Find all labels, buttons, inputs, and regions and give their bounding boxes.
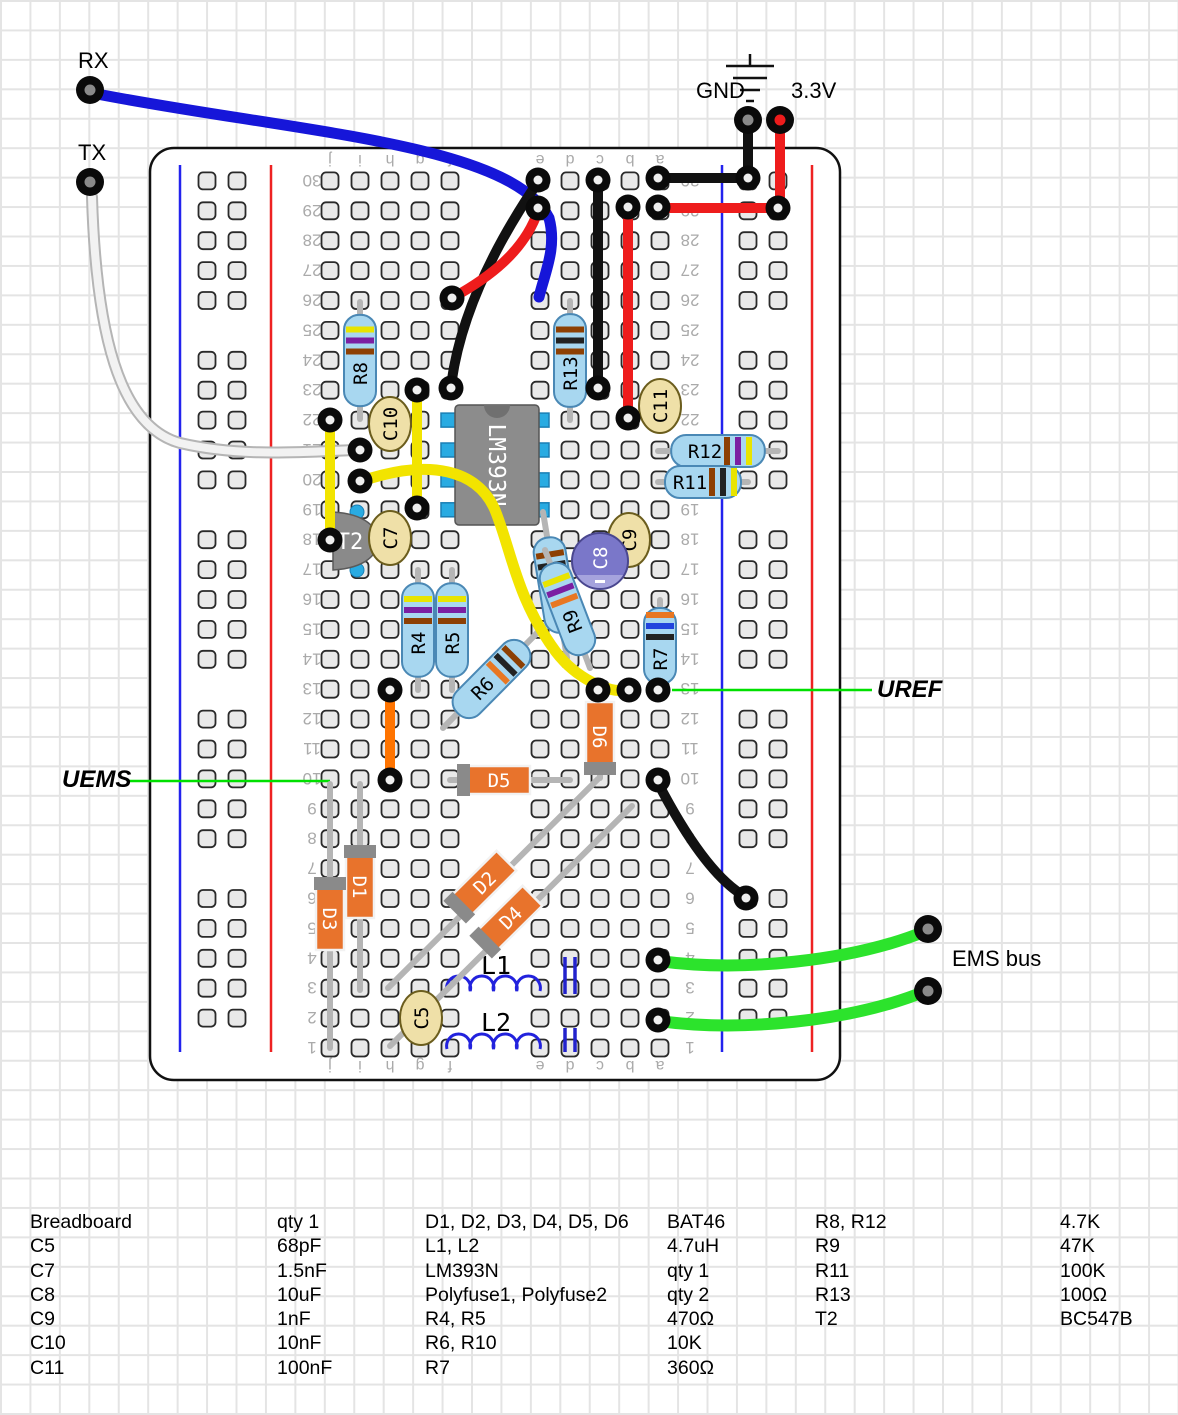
breadboard-hole[interactable] bbox=[740, 741, 757, 758]
wire-pin[interactable] bbox=[646, 768, 671, 793]
breadboard-hole[interactable] bbox=[229, 711, 246, 728]
breadboard-hole[interactable] bbox=[229, 561, 246, 578]
breadboard-hole[interactable] bbox=[532, 681, 549, 698]
breadboard-hole[interactable] bbox=[412, 711, 429, 728]
breadboard-hole[interactable] bbox=[229, 1010, 246, 1027]
breadboard-hole[interactable] bbox=[412, 800, 429, 817]
breadboard-hole[interactable] bbox=[622, 442, 639, 459]
breadboard-hole[interactable] bbox=[562, 890, 579, 907]
breadboard-hole[interactable] bbox=[199, 741, 216, 758]
breadboard-hole[interactable] bbox=[532, 950, 549, 967]
resistor-band bbox=[646, 623, 674, 629]
breadboard-hole[interactable] bbox=[382, 890, 399, 907]
breadboard-hole[interactable] bbox=[562, 471, 579, 488]
breadboard-hole[interactable] bbox=[352, 591, 369, 608]
wire-pin[interactable] bbox=[646, 166, 671, 191]
row-number: 28 bbox=[303, 231, 322, 250]
wire-pin[interactable] bbox=[440, 286, 465, 311]
wire-pin[interactable] bbox=[646, 195, 671, 220]
breadboard-hole[interactable] bbox=[770, 830, 787, 847]
breadboard-hole[interactable] bbox=[199, 950, 216, 967]
breadboard-hole[interactable] bbox=[229, 770, 246, 787]
breadboard-hole[interactable] bbox=[199, 202, 216, 219]
breadboard-hole[interactable] bbox=[622, 651, 639, 668]
breadboard-hole[interactable] bbox=[740, 920, 757, 937]
breadboard-hole[interactable] bbox=[532, 860, 549, 877]
breadboard-hole[interactable] bbox=[229, 651, 246, 668]
breadboard-hole[interactable] bbox=[592, 651, 609, 668]
breadboard-hole[interactable] bbox=[412, 770, 429, 787]
breadboard-hole[interactable] bbox=[352, 741, 369, 758]
breadboard-hole[interactable] bbox=[532, 1010, 549, 1027]
breadboard-hole[interactable] bbox=[442, 800, 459, 817]
resistor-band bbox=[346, 338, 374, 344]
breadboard-hole[interactable] bbox=[412, 860, 429, 877]
breadboard-hole[interactable] bbox=[322, 651, 339, 668]
breadboard-hole[interactable] bbox=[740, 711, 757, 728]
breadboard-hole[interactable] bbox=[229, 232, 246, 249]
part-designator: LM393N bbox=[425, 1259, 629, 1283]
breadboard-hole[interactable] bbox=[199, 920, 216, 937]
breadboard-hole[interactable] bbox=[532, 352, 549, 369]
breadboard-hole[interactable] bbox=[199, 531, 216, 548]
breadboard-hole[interactable] bbox=[229, 531, 246, 548]
breadboard-hole[interactable] bbox=[770, 561, 787, 578]
breadboard-hole[interactable] bbox=[652, 352, 669, 369]
breadboard-hole[interactable] bbox=[770, 262, 787, 279]
breadboard-hole[interactable] bbox=[622, 770, 639, 787]
breadboard-hole[interactable] bbox=[442, 262, 459, 279]
breadboard-hole[interactable] bbox=[229, 890, 246, 907]
breadboard-hole[interactable] bbox=[229, 412, 246, 429]
breadboard-hole[interactable] bbox=[592, 412, 609, 429]
breadboard-hole[interactable] bbox=[229, 920, 246, 937]
breadboard-hole[interactable] bbox=[532, 711, 549, 728]
breadboard-hole[interactable] bbox=[562, 442, 579, 459]
wire-pin[interactable] bbox=[646, 948, 671, 973]
wire-pin[interactable] bbox=[378, 678, 403, 703]
breadboard-hole[interactable] bbox=[740, 800, 757, 817]
breadboard-hole[interactable] bbox=[199, 830, 216, 847]
component-d6[interactable]: D6 bbox=[584, 692, 616, 778]
breadboard-hole[interactable] bbox=[652, 262, 669, 279]
part-value: 360Ω bbox=[667, 1356, 725, 1380]
breadboard-hole[interactable] bbox=[352, 681, 369, 698]
breadboard-hole[interactable] bbox=[652, 711, 669, 728]
wire-pin[interactable] bbox=[526, 168, 551, 193]
part-value: 470Ω bbox=[667, 1307, 725, 1331]
breadboard-hole[interactable] bbox=[382, 202, 399, 219]
breadboard-hole[interactable] bbox=[382, 292, 399, 309]
wire-pin[interactable] bbox=[646, 1008, 671, 1033]
breadboard-hole[interactable] bbox=[322, 621, 339, 638]
breadboard-hole[interactable] bbox=[592, 860, 609, 877]
breadboard-hole[interactable] bbox=[352, 232, 369, 249]
breadboard-hole[interactable] bbox=[412, 531, 429, 548]
breadboard-hole[interactable] bbox=[322, 202, 339, 219]
breadboard-hole[interactable] bbox=[229, 800, 246, 817]
breadboard-hole[interactable] bbox=[770, 890, 787, 907]
breadboard-hole[interactable] bbox=[382, 232, 399, 249]
breadboard-hole[interactable] bbox=[199, 711, 216, 728]
breadboard-hole[interactable] bbox=[562, 172, 579, 189]
breadboard-hole[interactable] bbox=[622, 591, 639, 608]
breadboard-hole[interactable] bbox=[352, 1040, 369, 1057]
component-r13[interactable]: R13 bbox=[554, 301, 586, 420]
breadboard-hole[interactable] bbox=[622, 621, 639, 638]
breadboard-hole[interactable] bbox=[229, 292, 246, 309]
breadboard-hole[interactable] bbox=[652, 322, 669, 339]
breadboard-hole[interactable] bbox=[199, 651, 216, 668]
breadboard-hole[interactable] bbox=[442, 172, 459, 189]
breadboard-hole[interactable] bbox=[770, 471, 787, 488]
wire-pin[interactable] bbox=[439, 376, 464, 401]
breadboard-hole[interactable] bbox=[740, 561, 757, 578]
component-r12[interactable]: R12 bbox=[658, 435, 778, 467]
breadboard-hole[interactable] bbox=[740, 830, 757, 847]
breadboard-hole[interactable] bbox=[229, 830, 246, 847]
breadboard-hole[interactable] bbox=[592, 920, 609, 937]
wire-pin[interactable] bbox=[646, 678, 671, 703]
breadboard-hole[interactable] bbox=[592, 1010, 609, 1027]
breadboard-hole[interactable] bbox=[592, 501, 609, 518]
component-r8[interactable]: R8 bbox=[344, 302, 376, 419]
breadboard-hole[interactable] bbox=[322, 711, 339, 728]
breadboard-hole[interactable] bbox=[532, 920, 549, 937]
breadboard-hole[interactable] bbox=[622, 1040, 639, 1057]
breadboard-hole[interactable] bbox=[442, 202, 459, 219]
breadboard-hole[interactable] bbox=[382, 262, 399, 279]
breadboard-hole[interactable] bbox=[199, 561, 216, 578]
component-c11[interactable]: C11 bbox=[639, 379, 681, 433]
breadboard-hole[interactable] bbox=[322, 352, 339, 369]
breadboard-hole[interactable] bbox=[740, 262, 757, 279]
breadboard-hole[interactable] bbox=[382, 172, 399, 189]
breadboard-hole[interactable] bbox=[199, 382, 216, 399]
breadboard-hole[interactable] bbox=[229, 980, 246, 997]
breadboard-hole[interactable] bbox=[229, 591, 246, 608]
wire-pin[interactable] bbox=[378, 768, 403, 793]
breadboard-hole[interactable] bbox=[442, 860, 459, 877]
breadboard-hole[interactable] bbox=[770, 651, 787, 668]
wire-pin[interactable] bbox=[318, 408, 343, 433]
breadboard-hole[interactable] bbox=[740, 531, 757, 548]
breadboard-hole[interactable] bbox=[442, 232, 459, 249]
breadboard-hole[interactable] bbox=[562, 830, 579, 847]
breadboard-hole[interactable] bbox=[199, 1010, 216, 1027]
breadboard-hole[interactable] bbox=[740, 292, 757, 309]
breadboard-hole[interactable] bbox=[652, 830, 669, 847]
breadboard-hole[interactable] bbox=[199, 232, 216, 249]
breadboard-hole[interactable] bbox=[322, 232, 339, 249]
breadboard-hole[interactable] bbox=[442, 830, 459, 847]
breadboard-hole[interactable] bbox=[532, 322, 549, 339]
breadboard-hole[interactable] bbox=[442, 1010, 459, 1027]
wire-pin[interactable] bbox=[348, 469, 373, 494]
row-number: 10 bbox=[303, 769, 322, 788]
breadboard-hole[interactable] bbox=[229, 382, 246, 399]
ems-pin-1[interactable] bbox=[914, 915, 942, 943]
breadboard-hole[interactable] bbox=[770, 531, 787, 548]
breadboard-hole[interactable] bbox=[770, 741, 787, 758]
wire-pin[interactable] bbox=[526, 196, 551, 221]
part-designator: R4, R5 bbox=[425, 1307, 629, 1331]
wire-pin[interactable] bbox=[586, 376, 611, 401]
breadboard-hole[interactable] bbox=[592, 591, 609, 608]
breadboard-hole[interactable] bbox=[322, 681, 339, 698]
breadboard-hole[interactable] bbox=[229, 262, 246, 279]
breadboard-hole[interactable] bbox=[412, 741, 429, 758]
breadboard-hole[interactable] bbox=[592, 890, 609, 907]
breadboard-hole[interactable] bbox=[770, 711, 787, 728]
component-c8[interactable]: C8 bbox=[572, 533, 628, 589]
breadboard-hole[interactable] bbox=[622, 471, 639, 488]
tx-pin[interactable] bbox=[76, 168, 104, 196]
breadboard-hole[interactable] bbox=[229, 621, 246, 638]
breadboard-hole[interactable] bbox=[412, 202, 429, 219]
column-letter: b bbox=[625, 1057, 634, 1074]
row-number: 24 bbox=[303, 350, 322, 369]
column-letter: h bbox=[386, 151, 395, 168]
breadboard-hole[interactable] bbox=[532, 651, 549, 668]
wire-pin[interactable] bbox=[736, 166, 761, 191]
part-designator: R6, R10 bbox=[425, 1331, 629, 1355]
breadboard-hole[interactable] bbox=[382, 352, 399, 369]
breadboard-hole[interactable] bbox=[199, 471, 216, 488]
breadboard-hole[interactable] bbox=[322, 262, 339, 279]
wire-pin[interactable] bbox=[586, 678, 611, 703]
breadboard-hole[interactable] bbox=[770, 232, 787, 249]
breadboard-hole[interactable] bbox=[412, 292, 429, 309]
wire-pin[interactable] bbox=[586, 168, 611, 193]
breadboard-hole[interactable] bbox=[442, 950, 459, 967]
breadboard-hole[interactable] bbox=[740, 232, 757, 249]
breadboard-hole[interactable] bbox=[412, 322, 429, 339]
breadboard-hole[interactable] bbox=[322, 292, 339, 309]
breadboard-hole[interactable] bbox=[199, 621, 216, 638]
breadboard-hole[interactable] bbox=[652, 890, 669, 907]
breadboard-hole[interactable] bbox=[412, 262, 429, 279]
row-number: 5 bbox=[685, 918, 694, 937]
breadboard-hole[interactable] bbox=[382, 1010, 399, 1027]
breadboard-hole[interactable] bbox=[199, 412, 216, 429]
breadboard-hole[interactable] bbox=[352, 621, 369, 638]
breadboard-hole[interactable] bbox=[562, 920, 579, 937]
rx-pin[interactable] bbox=[76, 76, 104, 104]
breadboard-hole[interactable] bbox=[562, 741, 579, 758]
breadboard-hole[interactable] bbox=[229, 471, 246, 488]
breadboard-hole[interactable] bbox=[652, 232, 669, 249]
breadboard-hole[interactable] bbox=[199, 770, 216, 787]
gnd-pin[interactable] bbox=[734, 106, 762, 134]
breadboard-hole[interactable] bbox=[562, 1010, 579, 1027]
breadboard-hole[interactable] bbox=[562, 232, 579, 249]
part-value: BAT46 bbox=[667, 1210, 725, 1234]
breadboard-hole[interactable] bbox=[740, 980, 757, 997]
breadboard-hole[interactable] bbox=[229, 172, 246, 189]
breadboard-hole[interactable] bbox=[770, 920, 787, 937]
breadboard-hole[interactable] bbox=[592, 1040, 609, 1057]
breadboard-hole[interactable] bbox=[652, 501, 669, 518]
breadboard-hole[interactable] bbox=[442, 322, 459, 339]
breadboard-hole[interactable] bbox=[622, 980, 639, 997]
breadboard-hole[interactable] bbox=[382, 651, 399, 668]
breadboard-hole[interactable] bbox=[322, 382, 339, 399]
part-designator: R11 bbox=[815, 1259, 887, 1283]
breadboard-hole[interactable] bbox=[740, 352, 757, 369]
breadboard-hole[interactable] bbox=[740, 382, 757, 399]
component-c5[interactable]: C5 bbox=[400, 991, 442, 1045]
breadboard-hole[interactable] bbox=[199, 352, 216, 369]
resistor-label: R8 bbox=[350, 362, 372, 385]
breadboard-hole[interactable] bbox=[352, 1010, 369, 1027]
part-value: 68pF bbox=[277, 1234, 332, 1258]
wire-pin[interactable] bbox=[734, 886, 759, 911]
breadboard-hole[interactable] bbox=[740, 621, 757, 638]
breadboard-hole[interactable] bbox=[770, 591, 787, 608]
breadboard-hole[interactable] bbox=[352, 172, 369, 189]
breadboard-hole[interactable] bbox=[382, 860, 399, 877]
breadboard-hole[interactable] bbox=[622, 1010, 639, 1027]
breadboard-hole[interactable] bbox=[562, 711, 579, 728]
breadboard-hole[interactable] bbox=[652, 980, 669, 997]
breadboard-hole[interactable] bbox=[770, 770, 787, 787]
breadboard-hole[interactable] bbox=[352, 651, 369, 668]
breadboard-hole[interactable] bbox=[652, 860, 669, 877]
breadboard-hole[interactable] bbox=[229, 352, 246, 369]
wire-pin[interactable] bbox=[318, 528, 343, 553]
wire-pin[interactable] bbox=[766, 196, 791, 221]
breadboard-hole[interactable] bbox=[592, 800, 609, 817]
breadboard-hole[interactable] bbox=[229, 202, 246, 219]
breadboard-hole[interactable] bbox=[770, 980, 787, 997]
breadboard-hole[interactable] bbox=[562, 262, 579, 279]
breadboard-hole[interactable] bbox=[382, 950, 399, 967]
breadboard-hole[interactable] bbox=[199, 591, 216, 608]
component-c10[interactable]: C10 bbox=[369, 397, 411, 451]
breadboard-hole[interactable] bbox=[199, 262, 216, 279]
breadboard-hole[interactable] bbox=[740, 770, 757, 787]
wire-pin[interactable] bbox=[617, 678, 642, 703]
wire-pin[interactable] bbox=[616, 406, 641, 431]
breadboard-hole[interactable] bbox=[229, 741, 246, 758]
row-number: 12 bbox=[303, 709, 322, 728]
breadboard-hole[interactable] bbox=[770, 292, 787, 309]
breadboard-hole[interactable] bbox=[442, 531, 459, 548]
breadboard-hole[interactable] bbox=[199, 172, 216, 189]
breadboard-hole[interactable] bbox=[322, 172, 339, 189]
breadboard-hole[interactable] bbox=[622, 950, 639, 967]
wire-pin[interactable] bbox=[348, 438, 373, 463]
breadboard-hole[interactable] bbox=[622, 741, 639, 758]
component-c7[interactable]: C7 bbox=[369, 511, 411, 565]
breadboard-hole[interactable] bbox=[592, 980, 609, 997]
breadboard-hole[interactable] bbox=[532, 800, 549, 817]
breadboard-hole[interactable] bbox=[740, 412, 757, 429]
wire-pin[interactable] bbox=[405, 378, 430, 403]
breadboard-hole[interactable] bbox=[352, 262, 369, 279]
breadboard-hole[interactable] bbox=[442, 741, 459, 758]
breadboard-hole[interactable] bbox=[199, 292, 216, 309]
breadboard-hole[interactable] bbox=[622, 711, 639, 728]
breadboard-hole[interactable] bbox=[532, 741, 549, 758]
component-r4[interactable]: R4 bbox=[402, 570, 434, 690]
breadboard-hole[interactable] bbox=[592, 471, 609, 488]
breadboard-hole[interactable] bbox=[562, 202, 579, 219]
v33-pin[interactable] bbox=[766, 106, 794, 134]
breadboard-hole[interactable] bbox=[652, 741, 669, 758]
breadboard-hole[interactable] bbox=[652, 920, 669, 937]
breadboard-hole[interactable] bbox=[770, 352, 787, 369]
breadboard-hole[interactable] bbox=[382, 591, 399, 608]
component-r11[interactable]: R11 bbox=[658, 466, 748, 498]
breadboard-hole[interactable] bbox=[622, 920, 639, 937]
breadboard-hole[interactable] bbox=[652, 561, 669, 578]
breadboard-hole[interactable] bbox=[382, 800, 399, 817]
breadboard-hole[interactable] bbox=[562, 681, 579, 698]
column-letter: j bbox=[328, 1057, 333, 1074]
breadboard-hole[interactable] bbox=[322, 741, 339, 758]
part-designator: Breadboard bbox=[30, 1210, 132, 1234]
breadboard-hole[interactable] bbox=[740, 591, 757, 608]
breadboard-hole[interactable] bbox=[412, 920, 429, 937]
component-r5[interactable]: R5 bbox=[436, 570, 468, 690]
breadboard-hole[interactable] bbox=[770, 382, 787, 399]
breadboard-hole[interactable] bbox=[770, 800, 787, 817]
wire-pin[interactable] bbox=[616, 195, 641, 220]
breadboard-hole[interactable] bbox=[622, 860, 639, 877]
breadboard-hole[interactable] bbox=[412, 890, 429, 907]
breadboard-hole[interactable] bbox=[382, 830, 399, 847]
breadboard-hole[interactable] bbox=[412, 352, 429, 369]
breadboard-hole[interactable] bbox=[229, 950, 246, 967]
resistor-band bbox=[720, 468, 726, 496]
breadboard-hole[interactable] bbox=[412, 830, 429, 847]
breadboard-hole[interactable] bbox=[442, 1040, 459, 1057]
breadboard-hole[interactable] bbox=[622, 890, 639, 907]
breadboard-hole[interactable] bbox=[622, 830, 639, 847]
breadboard-hole[interactable] bbox=[562, 501, 579, 518]
breadboard-hole[interactable] bbox=[740, 651, 757, 668]
breadboard-hole[interactable] bbox=[322, 322, 339, 339]
diode-label: D3 bbox=[318, 908, 340, 931]
breadboard-hole[interactable] bbox=[652, 531, 669, 548]
resistor-band bbox=[438, 618, 466, 624]
breadboard-hole[interactable] bbox=[199, 980, 216, 997]
breadboard-hole[interactable] bbox=[652, 292, 669, 309]
breadboard-hole[interactable] bbox=[199, 800, 216, 817]
breadboard-hole[interactable] bbox=[382, 920, 399, 937]
breadboard-hole[interactable] bbox=[770, 412, 787, 429]
ems-pin-2[interactable] bbox=[914, 977, 942, 1005]
breadboard-hole[interactable] bbox=[532, 382, 549, 399]
breadboard-hole[interactable] bbox=[412, 172, 429, 189]
breadboard-hole[interactable] bbox=[412, 232, 429, 249]
breadboard-hole[interactable] bbox=[770, 621, 787, 638]
breadboard-hole[interactable] bbox=[352, 202, 369, 219]
breadboard-hole[interactable] bbox=[352, 711, 369, 728]
breadboard-hole[interactable] bbox=[592, 442, 609, 459]
breadboard-hole[interactable] bbox=[322, 591, 339, 608]
wire-pin[interactable] bbox=[405, 496, 430, 521]
breadboard-hole[interactable] bbox=[199, 890, 216, 907]
column-letter: g bbox=[416, 1057, 425, 1074]
breadboard-hole[interactable] bbox=[652, 1040, 669, 1057]
breadboard-hole[interactable] bbox=[622, 172, 639, 189]
breadboard-hole[interactable] bbox=[382, 322, 399, 339]
breadboard-hole[interactable] bbox=[382, 621, 399, 638]
breadboard-hole[interactable] bbox=[592, 950, 609, 967]
